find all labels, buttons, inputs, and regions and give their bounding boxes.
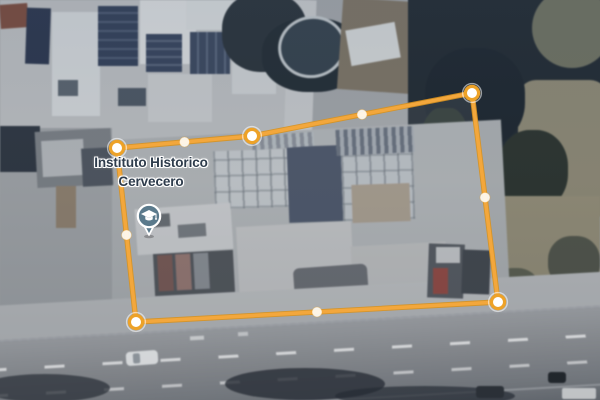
polygon-midpoint-handle[interactable] bbox=[122, 230, 132, 240]
place-label-line1: Instituto Historico bbox=[61, 153, 241, 172]
selection-overlay bbox=[0, 0, 600, 400]
place-label-line2: Cervecero bbox=[61, 172, 241, 191]
place-label[interactable]: Instituto Historico Cervecero bbox=[61, 153, 241, 191]
polygon-vertex-handle[interactable] bbox=[465, 86, 478, 99]
polygon-midpoint-handle[interactable] bbox=[312, 307, 322, 317]
satellite-map-canvas[interactable]: Instituto Historico Cervecero bbox=[0, 0, 600, 400]
poi-pin[interactable] bbox=[135, 202, 163, 240]
polygon-vertex-handle[interactable] bbox=[129, 315, 142, 328]
polygon-midpoint-handle[interactable] bbox=[480, 193, 490, 203]
polygon-midpoint-handle[interactable] bbox=[357, 110, 367, 120]
polygon-vertex-handle[interactable] bbox=[491, 295, 504, 308]
polygon-vertex-handle[interactable] bbox=[245, 129, 258, 142]
polygon-midpoint-handle[interactable] bbox=[180, 137, 190, 147]
